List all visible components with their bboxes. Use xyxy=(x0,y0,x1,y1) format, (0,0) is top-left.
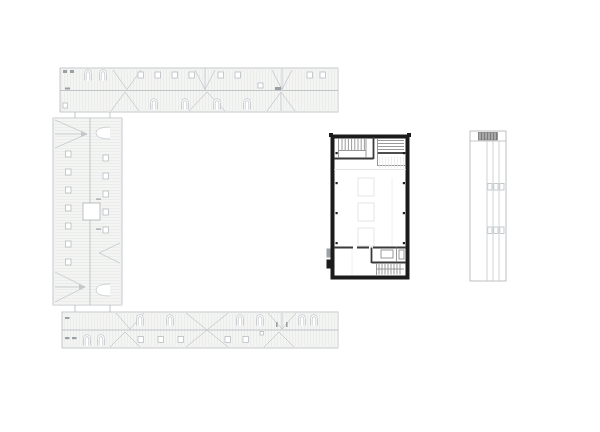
site-plan-drawing xyxy=(0,0,600,432)
east-annex-body xyxy=(470,131,506,281)
main-upper-room-floor xyxy=(378,157,407,168)
main-corner-cap-ne xyxy=(407,133,411,137)
east-annex-core-hatch xyxy=(479,133,498,141)
west-south-connector-walls xyxy=(75,305,110,312)
main-corner-cap-nw xyxy=(329,133,333,137)
main-entrance-pier-lower xyxy=(327,260,332,269)
west-wing-roof-opening xyxy=(83,203,100,220)
main-entrance-pier-upper xyxy=(327,249,332,258)
west-wing-roof-plan xyxy=(53,118,122,312)
north-wing-roof-plan xyxy=(60,68,338,118)
east-annex-roof-plan xyxy=(470,131,506,281)
drawing-sheet xyxy=(0,0,600,432)
south-wing-roof-plan xyxy=(62,312,338,348)
north-west-connector-walls xyxy=(75,112,110,118)
main-building-floor-plan xyxy=(327,133,412,278)
